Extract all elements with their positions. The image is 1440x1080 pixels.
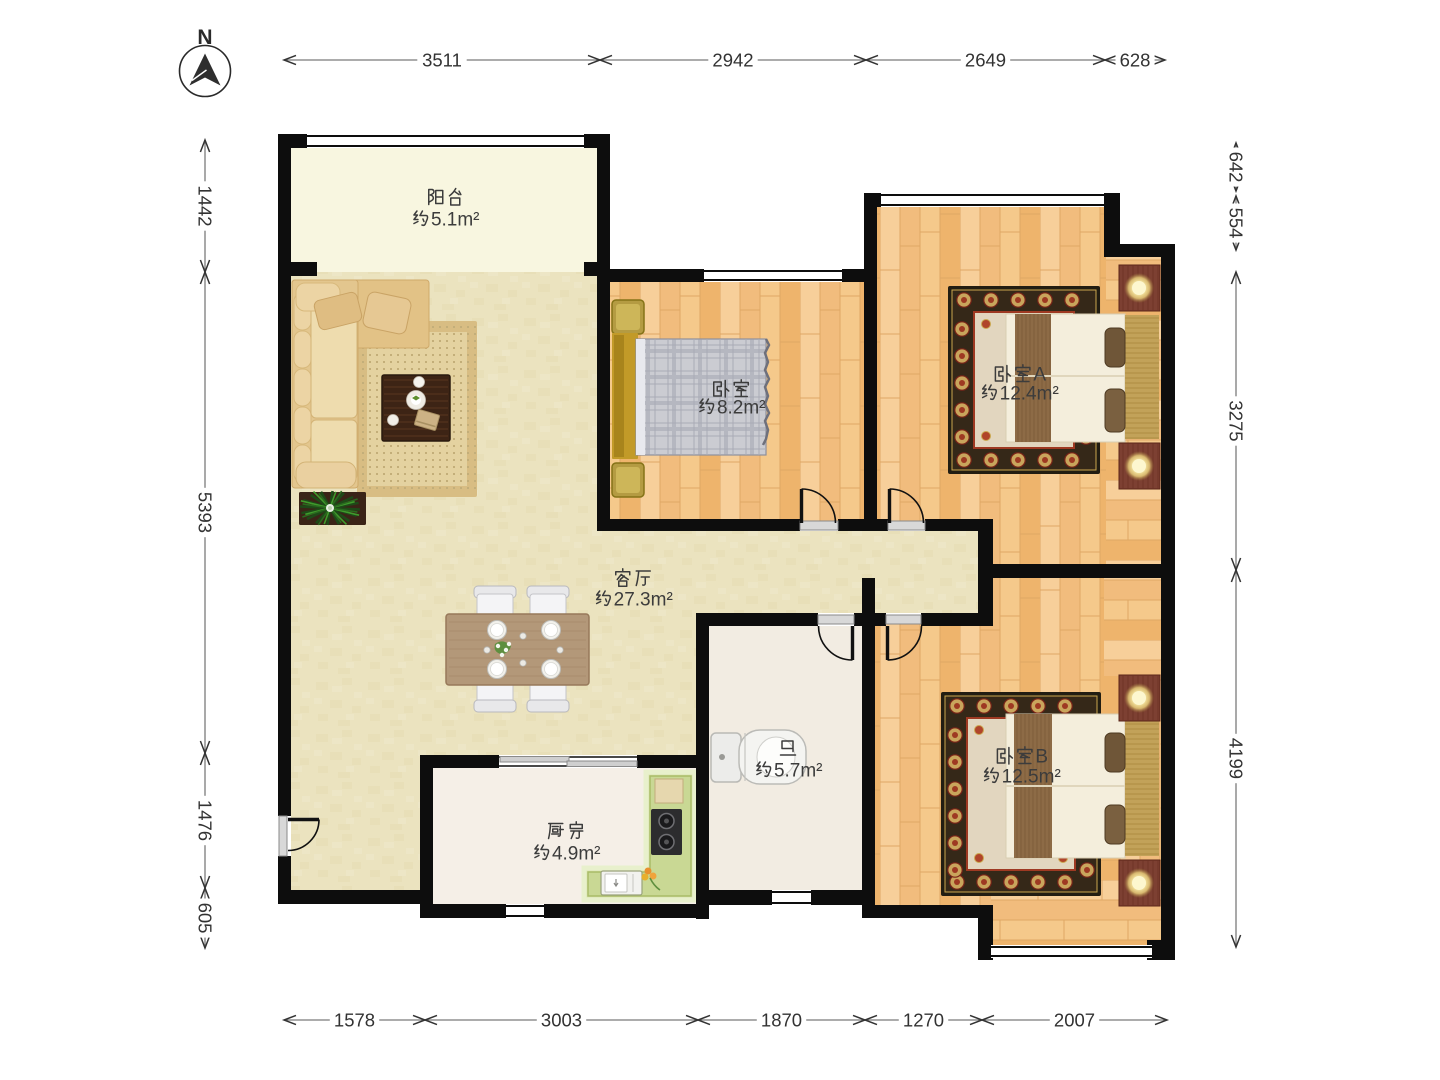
svg-text:1476: 1476 — [194, 800, 215, 841]
svg-text:2942: 2942 — [712, 50, 753, 71]
svg-text:3275: 3275 — [1225, 400, 1246, 441]
svg-text:3003: 3003 — [541, 1010, 582, 1031]
svg-text:628: 628 — [1120, 50, 1151, 71]
svg-text:605: 605 — [194, 903, 215, 934]
svg-text:B: B — [1035, 747, 1048, 768]
svg-text:5393: 5393 — [194, 492, 215, 533]
svg-text:5.7m²: 5.7m² — [774, 761, 823, 782]
svg-text:27.3m²: 27.3m² — [614, 590, 673, 611]
svg-text:4.9m²: 4.9m² — [552, 844, 601, 865]
svg-text:1442: 1442 — [194, 185, 215, 226]
svg-text:1870: 1870 — [761, 1010, 802, 1031]
svg-text:3511: 3511 — [422, 50, 462, 71]
svg-text:12.4m²: 12.4m² — [1000, 384, 1059, 405]
svg-text:1578: 1578 — [334, 1010, 375, 1031]
svg-text:2007: 2007 — [1054, 1010, 1095, 1031]
svg-text:12.5m²: 12.5m² — [1002, 767, 1061, 788]
svg-text:8.2m²: 8.2m² — [717, 398, 766, 419]
svg-text:1270: 1270 — [903, 1010, 944, 1031]
svg-text:642: 642 — [1225, 152, 1246, 183]
svg-text:A: A — [1033, 365, 1046, 386]
svg-text:2649: 2649 — [965, 50, 1006, 71]
svg-text:4199: 4199 — [1225, 738, 1246, 779]
svg-text:N: N — [197, 26, 212, 49]
svg-text:5.1m²: 5.1m² — [431, 210, 480, 231]
svg-text:554: 554 — [1225, 208, 1246, 239]
